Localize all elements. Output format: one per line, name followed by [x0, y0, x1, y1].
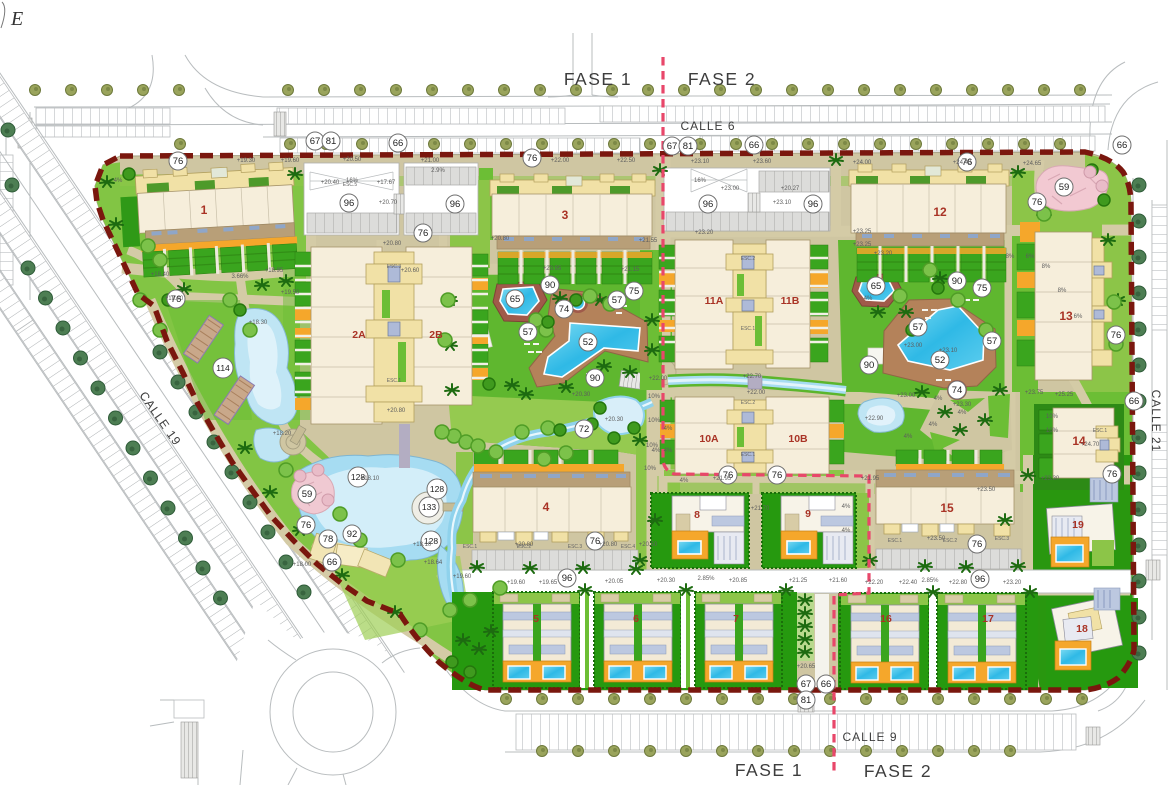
svg-text:+19.30: +19.30 [237, 158, 256, 164]
svg-text:67: 67 [310, 136, 321, 147]
svg-text:4%: 4% [864, 296, 873, 302]
svg-text:ESC.3: ESC.3 [387, 264, 402, 270]
svg-text:57: 57 [913, 322, 924, 333]
svg-text:+24.00: +24.00 [853, 160, 872, 166]
svg-text:1: 1 [201, 203, 208, 217]
svg-text:4: 4 [543, 500, 550, 514]
svg-text:52: 52 [583, 337, 594, 348]
svg-text:CALLE 6: CALLE 6 [680, 119, 735, 133]
svg-text:+23.25: +23.25 [853, 229, 872, 235]
svg-text:+21.15: +21.15 [621, 267, 640, 273]
svg-text:+23.75: +23.75 [1025, 390, 1044, 396]
svg-text:133: 133 [422, 502, 436, 512]
svg-text:10B: 10B [788, 433, 808, 445]
svg-text:+20.30: +20.30 [657, 578, 676, 584]
svg-text:10%: 10% [644, 466, 657, 472]
svg-text:76: 76 [173, 156, 184, 167]
svg-text:+20.60: +20.60 [401, 268, 420, 274]
svg-text:+23.10: +23.10 [773, 200, 792, 206]
svg-text:66: 66 [821, 679, 832, 690]
svg-text:ESC.2: ESC.2 [517, 544, 532, 550]
svg-text:96: 96 [975, 574, 986, 585]
svg-text:7: 7 [733, 613, 739, 625]
svg-text:E: E [10, 8, 23, 30]
svg-text:72: 72 [579, 424, 590, 435]
svg-text:+21.95: +21.95 [713, 476, 732, 482]
svg-text:76: 76 [1032, 197, 1043, 208]
svg-text:11A: 11A [705, 295, 724, 307]
svg-text:75: 75 [977, 283, 988, 294]
svg-text:+25.25: +25.25 [1055, 392, 1074, 398]
svg-text:ESC.2: ESC.2 [741, 256, 756, 262]
svg-text:ESC.2: ESC.2 [943, 538, 958, 544]
svg-text:4%: 4% [114, 178, 123, 184]
svg-text:67: 67 [667, 141, 678, 152]
svg-text:90: 90 [952, 276, 963, 287]
svg-text:+23.10: +23.10 [939, 348, 958, 354]
svg-text:+18.40: +18.40 [165, 296, 184, 302]
svg-text:2.85%: 2.85% [697, 576, 715, 582]
svg-text:+20.05: +20.05 [605, 579, 624, 585]
svg-text:+23.30: +23.30 [1041, 476, 1060, 482]
svg-text:+23.10: +23.10 [691, 159, 710, 165]
svg-text:+21.95: +21.95 [861, 476, 880, 482]
svg-text:4%: 4% [664, 426, 673, 432]
svg-text:CALLE 21: CALLE 21 [1149, 390, 1163, 453]
svg-text:CALLE 9: CALLE 9 [842, 730, 897, 744]
svg-text:10A: 10A [699, 433, 719, 445]
svg-text:+20.95: +20.95 [543, 266, 562, 272]
svg-text:59: 59 [302, 489, 313, 500]
svg-text:+21.00: +21.00 [421, 158, 440, 164]
svg-text:81: 81 [683, 141, 694, 152]
svg-text:+20.40: +20.40 [321, 180, 340, 186]
svg-text:ESC.2: ESC.2 [741, 400, 756, 406]
svg-text:+18.10: +18.10 [361, 476, 380, 482]
svg-text:67: 67 [801, 679, 812, 690]
svg-text:4%: 4% [929, 422, 938, 428]
svg-text:3: 3 [562, 208, 569, 222]
svg-text:+21.70: +21.70 [751, 506, 770, 512]
svg-text:+18.20: +18.20 [273, 431, 292, 437]
svg-text:92: 92 [347, 529, 358, 540]
svg-text:+20.50: +20.50 [343, 157, 362, 163]
svg-text:10%: 10% [648, 394, 661, 400]
svg-text:+20.30: +20.30 [605, 417, 624, 423]
svg-text:8%: 8% [1042, 264, 1051, 270]
svg-text:8%: 8% [1006, 254, 1015, 260]
svg-text:+21.25: +21.25 [789, 578, 808, 584]
svg-text:90: 90 [864, 360, 875, 371]
svg-text:74: 74 [952, 385, 963, 396]
svg-text:ESC.3: ESC.3 [995, 536, 1010, 542]
svg-text:3.66%: 3.66% [231, 274, 249, 280]
svg-text:+18.64: +18.64 [424, 560, 443, 566]
svg-text:13: 13 [1059, 309, 1073, 323]
svg-text:66: 66 [1129, 396, 1140, 407]
svg-text:+18.10: +18.10 [413, 542, 432, 548]
svg-text:+23.25: +23.25 [853, 242, 872, 248]
svg-text:+23.20: +23.20 [695, 230, 714, 236]
svg-text:59: 59 [1059, 182, 1070, 193]
svg-text:57: 57 [612, 295, 623, 306]
svg-text:+23.50: +23.50 [977, 487, 996, 493]
svg-text:+19.60: +19.60 [281, 158, 300, 164]
svg-text:+24.70: +24.70 [1081, 442, 1100, 448]
svg-text:6: 6 [633, 613, 639, 625]
svg-text:+23.00: +23.00 [904, 343, 923, 349]
svg-text:11B: 11B [781, 295, 800, 307]
svg-text:74: 74 [559, 304, 570, 315]
svg-text:ESC.1: ESC.1 [463, 544, 478, 550]
svg-text:+22.00: +22.00 [551, 158, 570, 164]
svg-text:96: 96 [703, 199, 714, 210]
svg-text:+18.30: +18.30 [249, 320, 268, 326]
svg-text:76: 76 [1111, 330, 1122, 341]
svg-text:65: 65 [510, 294, 521, 305]
svg-text:2.85%: 2.85% [921, 578, 939, 584]
svg-text:+18.40: +18.40 [151, 272, 170, 278]
svg-text:+19.50: +19.50 [281, 290, 300, 296]
svg-text:+22.50: +22.50 [617, 158, 636, 164]
svg-text:75: 75 [629, 286, 640, 297]
svg-text:+22.80: +22.80 [949, 580, 968, 586]
svg-text:4%: 4% [842, 528, 851, 534]
svg-text:2B: 2B [429, 329, 443, 341]
svg-text:+22.90: +22.90 [865, 416, 884, 422]
svg-text:+22.70: +22.70 [743, 374, 762, 380]
svg-text:90: 90 [545, 280, 556, 291]
svg-text:+20.70: +20.70 [379, 200, 398, 206]
svg-text:+20.80: +20.80 [383, 241, 402, 247]
svg-text:10%: 10% [648, 418, 661, 424]
svg-text:5: 5 [533, 613, 539, 625]
svg-text:FASE 2: FASE 2 [688, 69, 756, 89]
svg-text:8: 8 [694, 509, 700, 521]
svg-text:2.9%: 2.9% [431, 168, 445, 174]
svg-text:+23.00: +23.00 [721, 186, 740, 192]
svg-text:66: 66 [749, 140, 760, 151]
svg-text:ESC.1: ESC.1 [888, 538, 903, 544]
svg-text:4%: 4% [664, 448, 673, 454]
svg-text:4%: 4% [958, 410, 967, 416]
svg-text:+19.60: +19.60 [507, 580, 526, 586]
svg-text:90: 90 [590, 373, 601, 384]
svg-text:2A: 2A [352, 329, 366, 341]
svg-text:+18.00: +18.00 [293, 562, 312, 568]
svg-text:76: 76 [527, 153, 538, 164]
svg-text:+22.00: +22.00 [747, 390, 766, 396]
svg-text:+21.55: +21.55 [639, 238, 658, 244]
svg-text:+20.30: +20.30 [572, 392, 591, 398]
svg-text:+22.20: +22.20 [865, 580, 884, 586]
svg-text:+19.65: +19.65 [539, 580, 558, 586]
svg-text:+20.80: +20.80 [387, 408, 406, 414]
svg-text:65: 65 [871, 281, 882, 292]
svg-text:76: 76 [418, 228, 429, 239]
svg-text:ESC.3: ESC.3 [568, 544, 583, 550]
svg-text:76: 76 [972, 539, 983, 550]
svg-text:16%: 16% [694, 178, 707, 184]
svg-text:76: 76 [1107, 469, 1118, 480]
svg-text:+23.00: +23.00 [897, 393, 916, 399]
svg-text:ESC.1: ESC.1 [741, 452, 756, 458]
svg-text:57: 57 [523, 327, 534, 338]
svg-text:+17.67: +17.67 [377, 180, 396, 186]
svg-text:128: 128 [430, 484, 444, 494]
svg-text:66: 66 [327, 557, 338, 568]
svg-text:66: 66 [393, 138, 404, 149]
svg-text:76: 76 [301, 520, 312, 531]
svg-text:+18.95: +18.95 [265, 268, 284, 274]
svg-text:+21.60: +21.60 [829, 578, 848, 584]
svg-text:+24.65: +24.65 [1023, 161, 1042, 167]
svg-text:96: 96 [562, 573, 573, 584]
svg-text:FASE 1: FASE 1 [735, 760, 803, 780]
svg-text:+23.20: +23.20 [1003, 580, 1022, 586]
svg-text:6%: 6% [1026, 254, 1035, 260]
svg-text:10%: 10% [646, 443, 659, 449]
svg-text:ESC.5: ESC.5 [343, 182, 358, 188]
svg-text:4%: 4% [934, 396, 943, 402]
svg-text:+24.40: +24.40 [953, 160, 972, 166]
svg-text:+20.80: +20.80 [599, 542, 618, 548]
svg-text:FASE 1: FASE 1 [564, 69, 632, 89]
svg-text:78: 78 [323, 534, 334, 545]
svg-text:96: 96 [450, 199, 461, 210]
svg-text:6%: 6% [1074, 314, 1083, 320]
svg-text:ESC.1: ESC.1 [387, 378, 402, 384]
svg-text:81: 81 [801, 695, 812, 706]
svg-text:18: 18 [1076, 623, 1088, 635]
svg-text:17: 17 [982, 613, 994, 625]
svg-text:+20.50: +20.50 [639, 542, 658, 548]
svg-text:96: 96 [344, 198, 355, 209]
svg-text:12: 12 [933, 205, 947, 219]
svg-text:ESC.1: ESC.1 [741, 326, 756, 332]
svg-text:9: 9 [805, 508, 811, 520]
svg-text:+22.00: +22.00 [649, 376, 668, 382]
svg-text:4%: 4% [842, 504, 851, 510]
svg-text:+23.60: +23.60 [753, 159, 772, 165]
svg-text:114: 114 [216, 363, 230, 373]
svg-text:+20.80: +20.80 [491, 236, 510, 242]
svg-text:19: 19 [1072, 519, 1084, 531]
svg-text:10%: 10% [1046, 428, 1059, 434]
svg-text:8%: 8% [1058, 288, 1067, 294]
svg-text:+22.40: +22.40 [899, 580, 918, 586]
svg-text:+23.20: +23.20 [874, 251, 893, 257]
svg-text:96: 96 [808, 199, 819, 210]
svg-text:66: 66 [1117, 140, 1128, 151]
svg-text:+20.85: +20.85 [729, 578, 748, 584]
svg-text:+19.60: +19.60 [453, 574, 472, 580]
svg-text:+20.65: +20.65 [797, 664, 816, 670]
svg-text:16: 16 [880, 613, 892, 625]
svg-text:81: 81 [326, 136, 337, 147]
svg-text:FASE 2: FASE 2 [864, 761, 932, 781]
svg-text:4%: 4% [904, 434, 913, 440]
svg-text:4%: 4% [680, 478, 689, 484]
svg-text:+23.30: +23.30 [953, 402, 972, 408]
svg-text:+20.27: +20.27 [781, 186, 800, 192]
svg-text:76: 76 [772, 470, 783, 481]
svg-text:10%: 10% [1046, 414, 1059, 420]
svg-text:ESC.1: ESC.1 [1093, 428, 1108, 434]
svg-text:52: 52 [935, 355, 946, 366]
svg-text:57: 57 [987, 336, 998, 347]
svg-text:ESC.4: ESC.4 [621, 544, 636, 550]
svg-text:15: 15 [940, 501, 954, 515]
